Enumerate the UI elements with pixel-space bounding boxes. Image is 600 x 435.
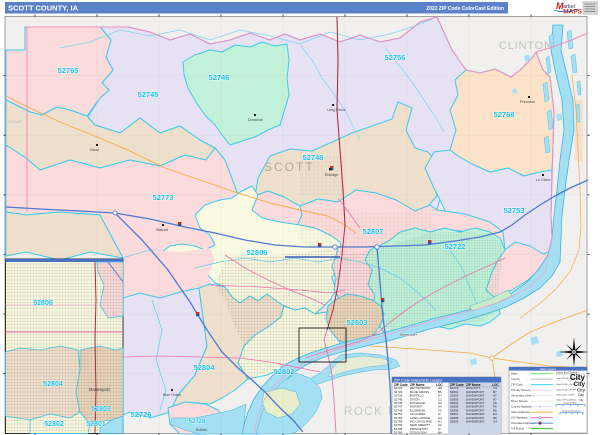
svg-text:52765: 52765 <box>58 66 79 75</box>
svg-text:Bettendorf: Bettendorf <box>400 333 417 337</box>
svg-text:52753: 52753 <box>504 206 525 215</box>
svg-text:2022 ZIP Code ColorCast Editio: 2022 ZIP Code ColorCast Edition <box>426 6 504 12</box>
svg-text:52756: 52756 <box>385 53 406 62</box>
svg-text:52803: 52803 <box>91 406 111 413</box>
svg-text:STOCKTON: STOCKTON <box>410 431 427 435</box>
svg-text:Blue Grass: Blue Grass <box>163 393 181 397</box>
svg-text:52803: 52803 <box>347 318 368 327</box>
svg-text:City: City <box>574 382 586 388</box>
svg-text:52807: 52807 <box>363 227 384 236</box>
svg-text:Princeton: Princeton <box>520 100 535 104</box>
svg-text:Eldridge: Eldridge <box>325 173 338 177</box>
svg-text:Minor Streets: Minor Streets <box>511 399 528 403</box>
svg-text:ZIP Code Index/Grid Locator: ZIP Code Index/Grid Locator <box>394 378 443 382</box>
svg-text:52802: 52802 <box>274 367 295 376</box>
svg-text:ZIP Code: ZIP Code <box>511 383 523 387</box>
svg-text:Walcott: Walcott <box>156 228 168 232</box>
svg-text:Primary Streets: Primary Streets <box>511 388 531 392</box>
svg-text:Cities 5,000 - 24,999: Cities 5,000 - 24,999 <box>556 394 575 397</box>
svg-text:52745: 52745 <box>138 90 159 99</box>
svg-text:52806: 52806 <box>247 248 268 257</box>
svg-text:SCOTT: SCOTT <box>264 160 315 174</box>
svg-text:52722: 52722 <box>445 242 466 251</box>
svg-text:State Highways: State Highways <box>511 410 531 414</box>
svg-text:52773: 52773 <box>153 193 174 202</box>
svg-text:City: City <box>579 398 584 402</box>
svg-text:Scale of Miles: Scale of Miles <box>564 402 579 404</box>
svg-text:Buffalo: Buffalo <box>196 428 207 432</box>
svg-text:52802: 52802 <box>44 421 64 428</box>
svg-text:Toll Roads: Toll Roads <box>511 427 525 431</box>
svg-text:City: City <box>570 373 586 382</box>
svg-text:Scale of Kilometers: Scale of Kilometers <box>562 409 582 412</box>
svg-text:52748: 52748 <box>303 153 324 162</box>
svg-text:County Highways: County Highways <box>511 405 533 409</box>
svg-text:B4: B4 <box>438 431 442 435</box>
svg-text:Dixon: Dixon <box>90 148 99 152</box>
svg-text:52806: 52806 <box>33 300 53 307</box>
svg-text:52804: 52804 <box>194 363 216 372</box>
svg-text:52728: 52728 <box>189 419 206 425</box>
svg-text:City: City <box>578 393 584 397</box>
svg-text:Cities 4,999 and Below: Cities 4,999 and Below <box>556 399 577 402</box>
svg-text:Cities 25,000 - 49,999: Cities 25,000 - 49,999 <box>556 388 576 391</box>
svg-text:52804: 52804 <box>43 381 63 388</box>
svg-text:Long Grove: Long Grove <box>327 108 346 112</box>
svg-text:52809: 52809 <box>450 420 459 424</box>
svg-text:52801: 52801 <box>86 421 106 428</box>
svg-text:CLINTON: CLINTON <box>499 40 553 52</box>
svg-text:G4: G4 <box>493 420 497 424</box>
svg-text:52726: 52726 <box>131 410 152 419</box>
svg-text:SCOTT COUNTY, IA: SCOTT COUNTY, IA <box>8 4 79 13</box>
svg-text:Map Legend: Map Legend <box>540 367 556 371</box>
svg-text:52769: 52769 <box>394 431 403 435</box>
svg-text:County: County <box>511 377 520 381</box>
svg-text:Davenport: Davenport <box>89 387 111 392</box>
svg-text:52746: 52746 <box>209 73 230 82</box>
svg-text:CEDAR: CEDAR <box>8 119 22 124</box>
svg-text:52768: 52768 <box>494 110 515 119</box>
svg-text:Donahue: Donahue <box>248 118 263 122</box>
svg-text:US Highways: US Highways <box>511 416 528 420</box>
svg-text:Le Claire: Le Claire <box>536 178 550 182</box>
